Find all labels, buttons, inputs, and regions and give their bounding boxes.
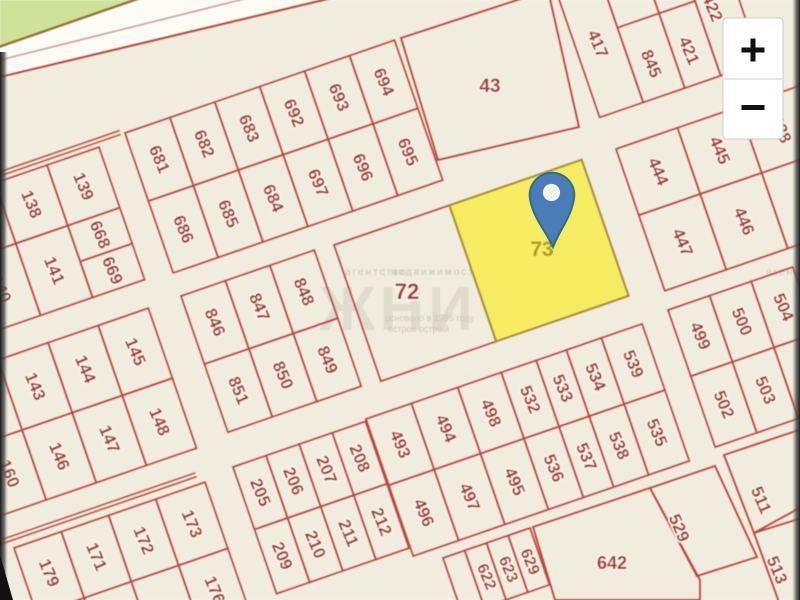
svg-text:основано в 1995 году: основано в 1995 году [385, 313, 475, 323]
svg-text:72: 72 [395, 279, 419, 304]
svg-text:43: 43 [479, 76, 500, 97]
svg-text:остров острый: остров острый [388, 324, 449, 334]
svg-text:642: 642 [597, 553, 627, 573]
